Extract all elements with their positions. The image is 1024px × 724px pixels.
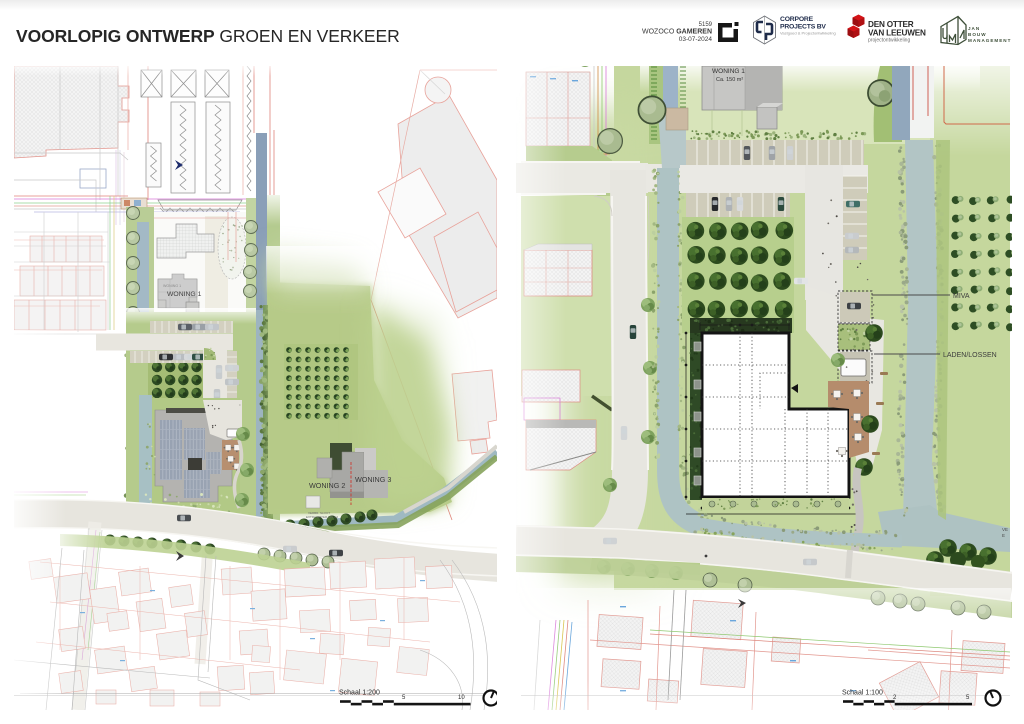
svg-text:CORPORE: CORPORE [780, 16, 814, 23]
svg-text:WONING 1: WONING 1 [163, 284, 181, 288]
svg-text:WONING 1: WONING 1 [167, 291, 202, 298]
svg-text:Schaal 1:200: Schaal 1:200 [339, 690, 380, 697]
svg-text:WONING 3: WONING 3 [355, 475, 391, 484]
svg-text:WONING 1: WONING 1 [712, 68, 745, 75]
svg-text:Schaal 1:100: Schaal 1:100 [842, 690, 883, 697]
svg-text:WOZOCO GAMEREN: WOZOCO GAMEREN [642, 29, 712, 36]
svg-text:PROJECTS BV: PROJECTS BV [780, 24, 826, 31]
svg-text:5159: 5159 [699, 22, 713, 28]
svg-text:03-07-2024: 03-07-2024 [679, 36, 713, 43]
svg-text:E: E [1002, 533, 1005, 538]
svg-text:Vastgoed & Projectontwikkeling: Vastgoed & Projectontwikkeling [780, 31, 836, 36]
svg-text:Ca. 150 m²: Ca. 150 m² [716, 77, 743, 83]
svg-text:MIVA: MIVA [953, 293, 970, 300]
svg-text:LADEN/LOSSEN: LADEN/LOSSEN [943, 352, 997, 359]
svg-text:WONING 2: WONING 2 [309, 481, 345, 490]
svg-text:5: 5 [402, 695, 406, 701]
svg-text:VAN LEEUWEN: VAN LEEUWEN [868, 29, 926, 38]
svg-text:VE: VE [1002, 527, 1008, 532]
svg-text:MANAGEMENT: MANAGEMENT [968, 38, 1011, 43]
svg-text:10: 10 [458, 695, 465, 701]
svg-text:projectontwikkeling: projectontwikkeling [868, 38, 910, 44]
svg-text:EXTRA WATER 135 m2: EXTRA WATER 135 m2 [306, 515, 338, 519]
svg-text:BOUW: BOUW [968, 32, 987, 37]
svg-text:JAN: JAN [968, 26, 980, 31]
